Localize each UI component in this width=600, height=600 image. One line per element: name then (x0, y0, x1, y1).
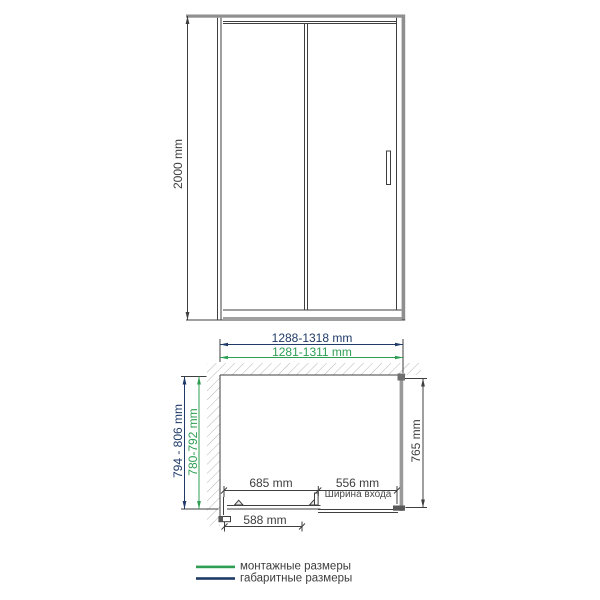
legend-overall-label: габаритные размеры (240, 573, 352, 585)
front-view-lines (186, 18, 405, 320)
front-view (186, 15, 406, 321)
technical-drawing: 2000 mm 1288-1318 mm 1281-1311 mm 794 - … (0, 0, 600, 600)
legend-mounting-line (196, 566, 235, 569)
door-width-label: 588 mm (243, 514, 286, 526)
side-panel (400, 375, 404, 511)
mounting-depth-label: 780-792 mm (187, 408, 199, 475)
door-handle-plan (315, 493, 319, 505)
floor-guide-block (219, 517, 223, 522)
roller-left (235, 500, 244, 505)
overall-width-label: 1288-1318 mm (272, 332, 353, 344)
entry-width-label: 556 mm (336, 477, 379, 489)
right-profile (402, 15, 406, 321)
legend-mounting-label: монтажные размеры (240, 561, 351, 573)
legend-overall-line (196, 577, 235, 580)
door-travel-label: 685 mm (249, 477, 292, 489)
height-dimension-label: 2000 mm (172, 139, 184, 189)
top-profile (186, 15, 405, 18)
plan-view (207, 363, 421, 526)
side-panel-bottom-connector (393, 506, 405, 511)
mounting-width-label: 1281-1311 mm (272, 346, 352, 358)
side-panel-top-connector (398, 374, 406, 381)
door-handle-front (387, 151, 391, 185)
entry-width-caption: Ширина входа (325, 490, 392, 500)
side-depth-label: 765 mm (410, 419, 422, 462)
overall-depth-label: 794 - 806 mm (172, 404, 184, 478)
drawing-canvas (0, 0, 600, 600)
height-dimension (186, 16, 190, 320)
